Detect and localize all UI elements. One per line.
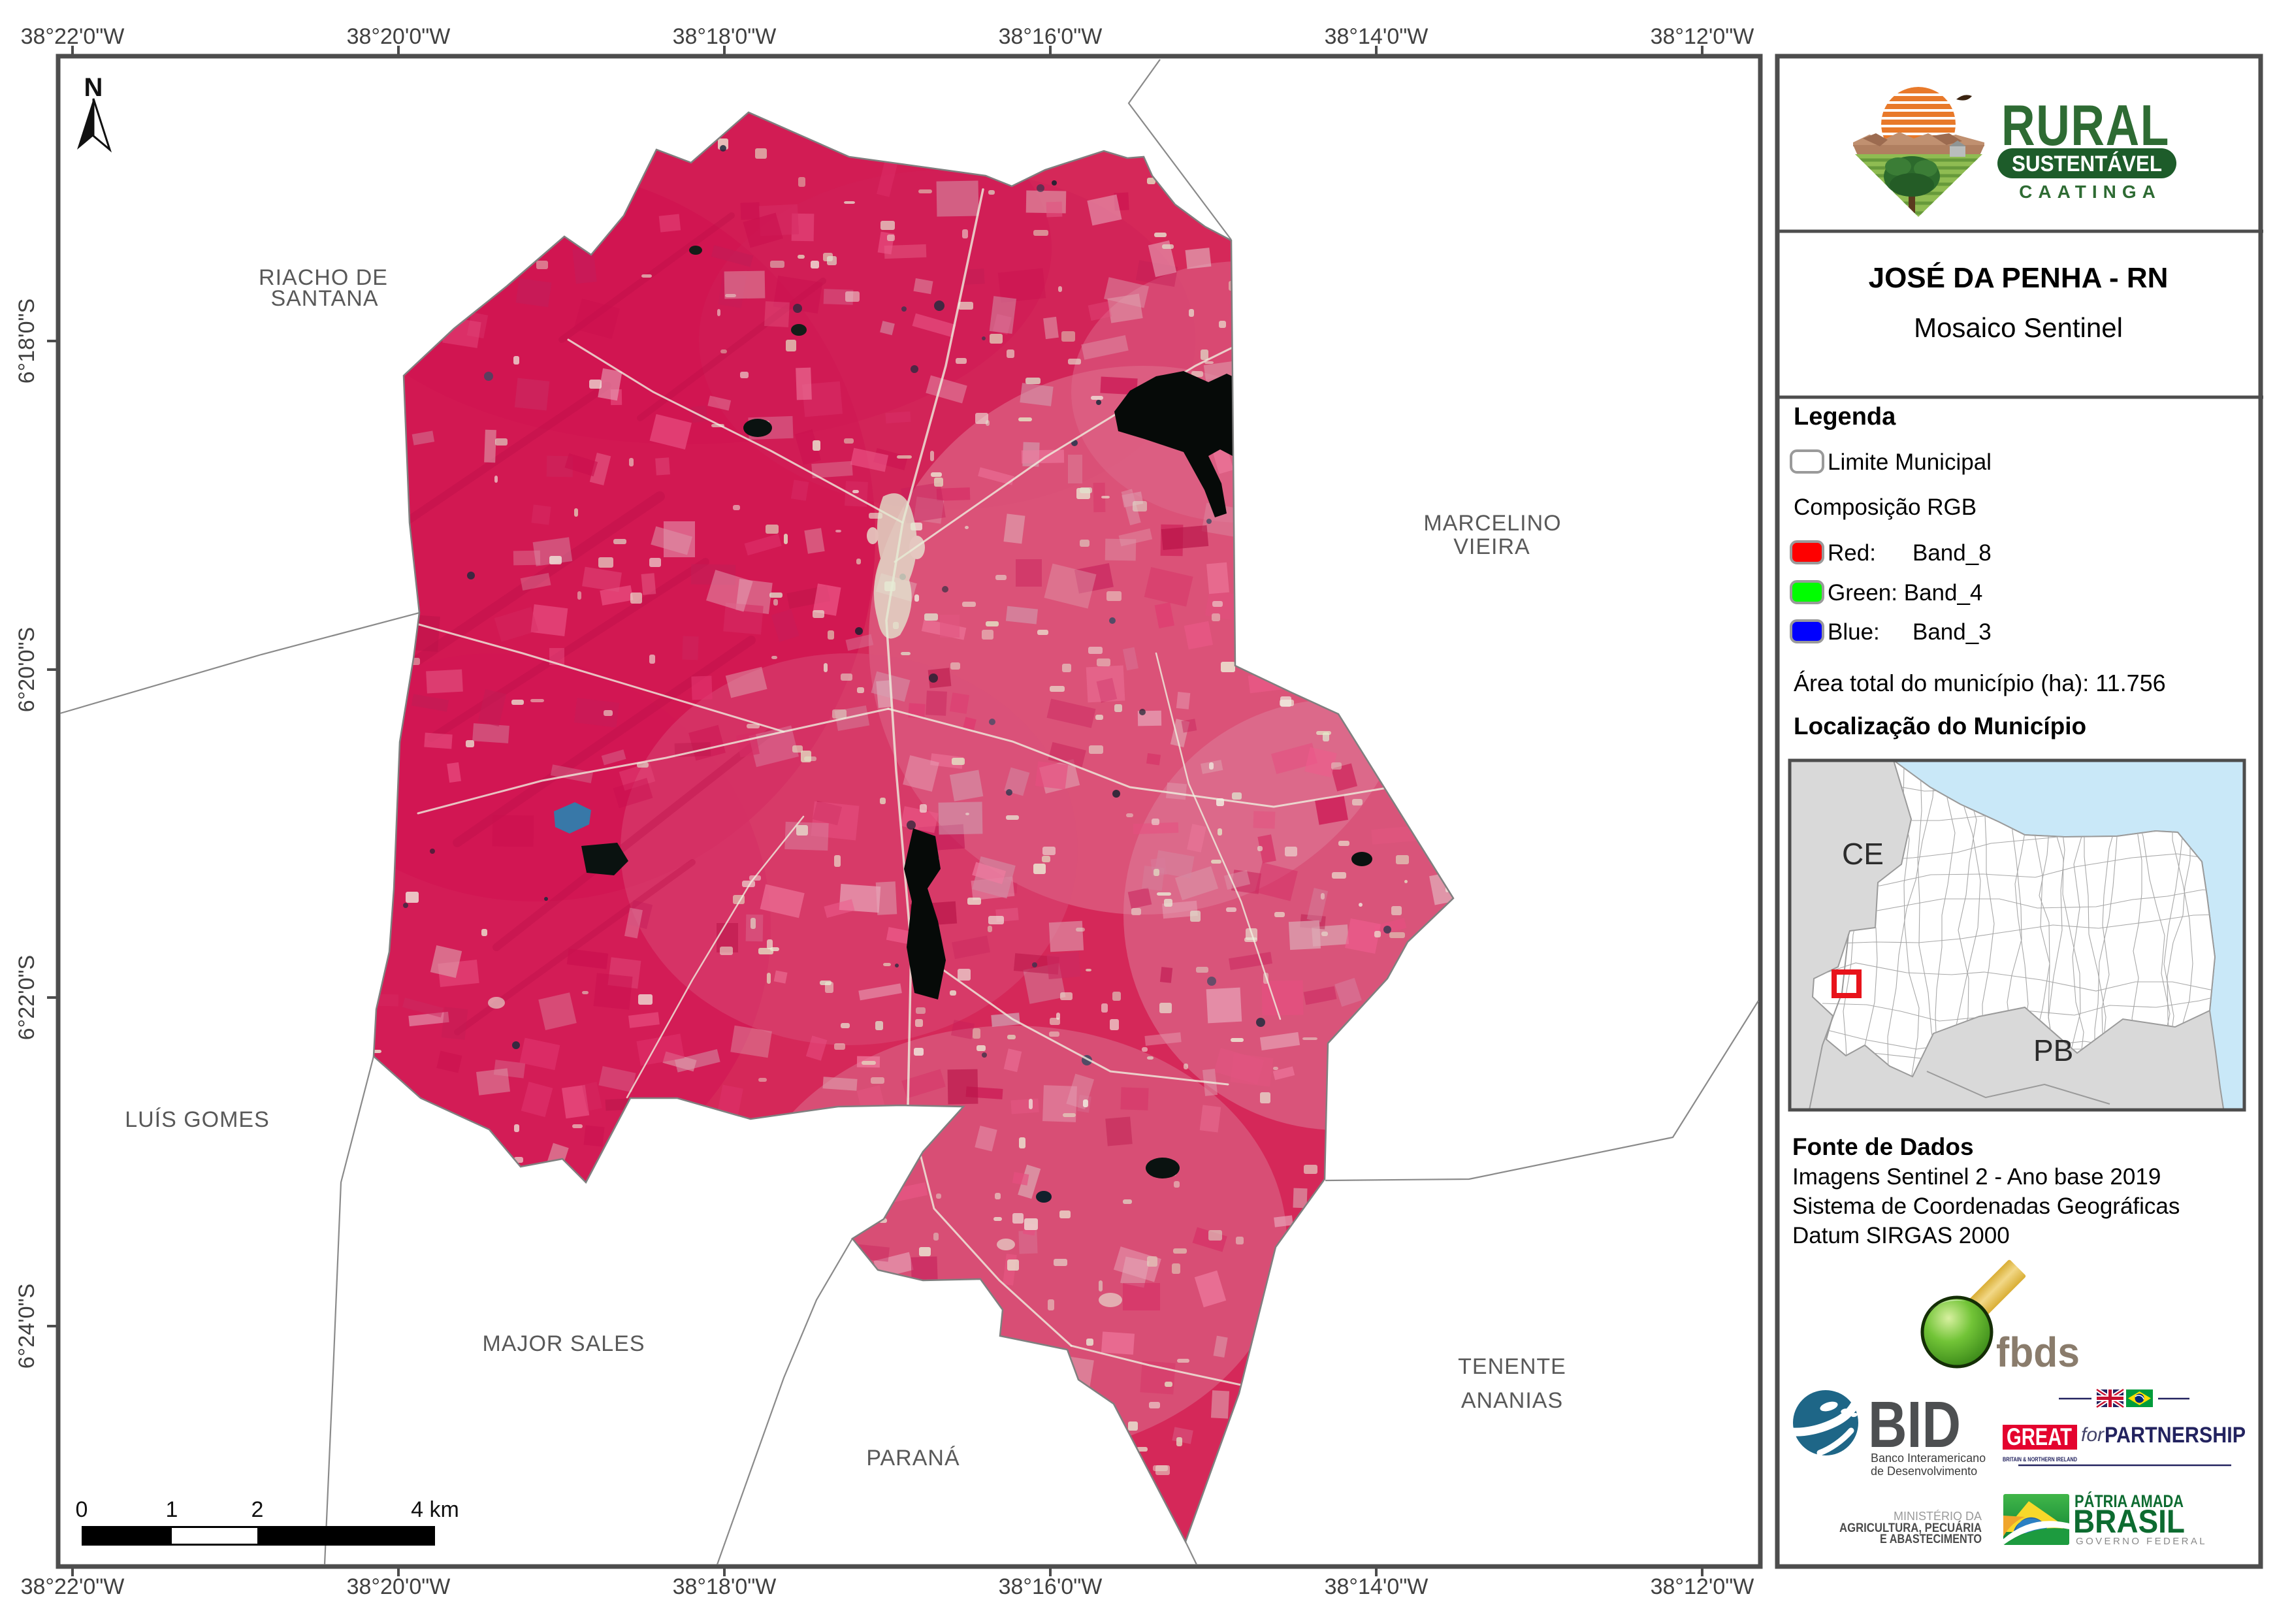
svg-text:CAATINGA: CAATINGA (2019, 182, 2161, 202)
svg-text:BRASIL: BRASIL (2073, 1503, 2185, 1540)
svg-text:38°18'0"W: 38°18'0"W (673, 24, 777, 49)
svg-text:38°22'0"W: 38°22'0"W (21, 24, 125, 49)
svg-text:Fonte de Dados: Fonte de Dados (1792, 1133, 1974, 1160)
svg-text:2: 2 (251, 1497, 264, 1522)
svg-text:BRITAIN & NORTHERN IRELAND: BRITAIN & NORTHERN IRELAND (2003, 1456, 2077, 1463)
svg-text:PARANÁ: PARANÁ (866, 1446, 960, 1470)
svg-text:SANTANA: SANTANA (270, 286, 378, 311)
svg-text:LUÍS GOMES: LUÍS GOMES (125, 1107, 270, 1132)
svg-text:TENENTE: TENENTE (1458, 1354, 1566, 1379)
svg-text:Imagens Sentinel 2 - Ano base: Imagens Sentinel 2 - Ano base 2019 (1792, 1164, 2161, 1190)
svg-text:Legenda: Legenda (1794, 403, 1896, 430)
svg-text:38°16'0"W: 38°16'0"W (999, 24, 1103, 49)
svg-text:38°12'0"W: 38°12'0"W (1651, 24, 1754, 49)
svg-text:fbds: fbds (1996, 1329, 2080, 1376)
svg-text:Green: Band_4: Green: Band_4 (1828, 580, 1982, 606)
svg-text:Área total do município (ha):: Área total do município (ha): 11.756 (1794, 670, 2166, 696)
svg-text:38°14'0"W: 38°14'0"W (1325, 1574, 1428, 1599)
svg-text:Band_8: Band_8 (1913, 540, 1992, 566)
svg-text:VIEIRA: VIEIRA (1453, 534, 1530, 559)
svg-text:RURAL: RURAL (2001, 93, 2170, 157)
svg-text:N: N (84, 73, 103, 102)
svg-text:MAJOR SALES: MAJOR SALES (482, 1331, 645, 1356)
svg-text:ANANIAS: ANANIAS (1461, 1388, 1563, 1413)
svg-text:6°18'0"S: 6°18'0"S (14, 299, 39, 383)
svg-text:CE: CE (1842, 837, 1884, 871)
svg-text:for: for (2081, 1424, 2105, 1446)
svg-text:MARCELINO: MARCELINO (1423, 511, 1561, 536)
svg-text:JOSÉ DA PENHA - RN: JOSÉ DA PENHA - RN (1869, 261, 2169, 294)
svg-text:PARTNERSHIP: PARTNERSHIP (2105, 1423, 2246, 1448)
svg-text:GOVERNO FEDERAL: GOVERNO FEDERAL (2076, 1536, 2207, 1547)
svg-text:Band_3: Band_3 (1913, 619, 1992, 645)
svg-text:BID: BID (1868, 1388, 1961, 1461)
svg-text:PB: PB (2033, 1033, 2073, 1067)
svg-text:4 km: 4 km (411, 1497, 459, 1522)
svg-text:38°16'0"W: 38°16'0"W (999, 1574, 1103, 1599)
svg-text:6°24'0"S: 6°24'0"S (14, 1284, 39, 1369)
svg-text:Mosaico Sentinel: Mosaico Sentinel (1914, 312, 2123, 343)
svg-text:Blue:: Blue: (1828, 619, 1880, 645)
svg-text:Datum SIRGAS 2000: Datum SIRGAS 2000 (1792, 1223, 2010, 1248)
svg-text:38°14'0"W: 38°14'0"W (1325, 24, 1428, 49)
svg-text:Red:: Red: (1828, 540, 1876, 566)
svg-text:6°20'0"S: 6°20'0"S (14, 627, 39, 712)
svg-text:SUSTENTÁVEL: SUSTENTÁVEL (2012, 152, 2162, 176)
svg-text:38°22'0"W: 38°22'0"W (21, 1574, 125, 1599)
svg-text:38°12'0"W: 38°12'0"W (1651, 1574, 1754, 1599)
svg-text:E ABASTECIMENTO: E ABASTECIMENTO (1880, 1533, 1982, 1546)
svg-text:Sistema de Coordenadas Geográf: Sistema de Coordenadas Geográficas (1792, 1194, 2180, 1219)
svg-text:Localização do Município: Localização do Município (1794, 713, 2086, 739)
svg-text:Composição RGB: Composição RGB (1794, 495, 1977, 520)
svg-text:38°20'0"W: 38°20'0"W (347, 1574, 451, 1599)
svg-text:MINISTÉRIO DA: MINISTÉRIO DA (1894, 1510, 1982, 1523)
svg-text:38°20'0"W: 38°20'0"W (347, 24, 451, 49)
svg-text:0: 0 (76, 1497, 88, 1522)
svg-text:GREAT: GREAT (2007, 1423, 2072, 1450)
svg-text:6°22'0"S: 6°22'0"S (14, 955, 39, 1040)
svg-text:Limite Municipal: Limite Municipal (1828, 449, 1992, 475)
svg-text:de Desenvolvimento: de Desenvolvimento (1871, 1465, 1977, 1478)
svg-text:Banco Interamericano: Banco Interamericano (1871, 1452, 1986, 1465)
svg-text:1: 1 (166, 1497, 178, 1522)
svg-text:38°18'0"W: 38°18'0"W (673, 1574, 777, 1599)
